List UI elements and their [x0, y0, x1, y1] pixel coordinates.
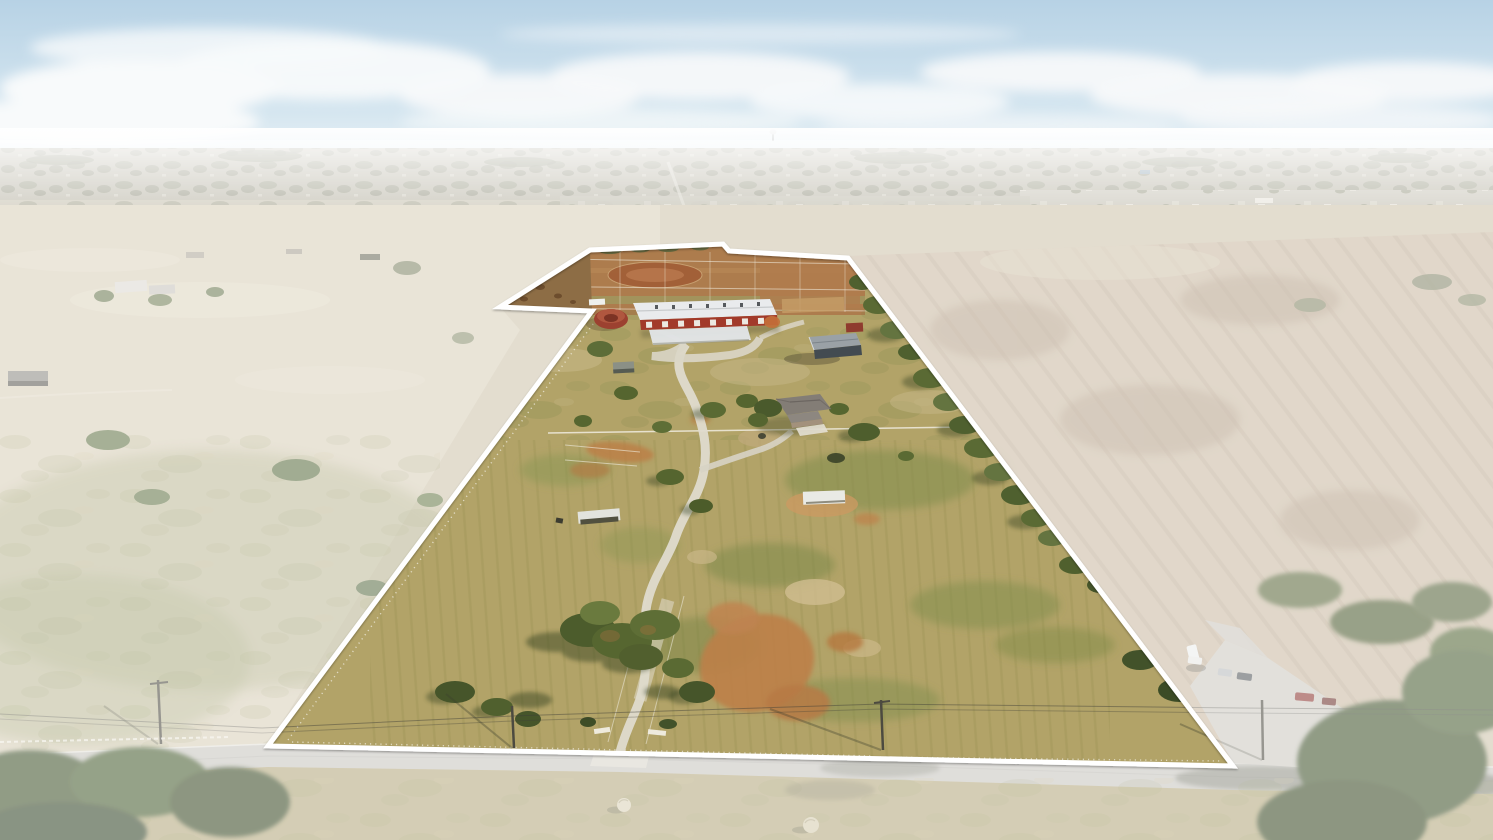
equipment-shed	[613, 361, 635, 373]
red-shed	[846, 323, 863, 333]
tractor	[827, 453, 845, 463]
feeder	[758, 433, 766, 439]
aerial-photo	[0, 0, 1493, 840]
horse-trailer	[589, 299, 605, 306]
